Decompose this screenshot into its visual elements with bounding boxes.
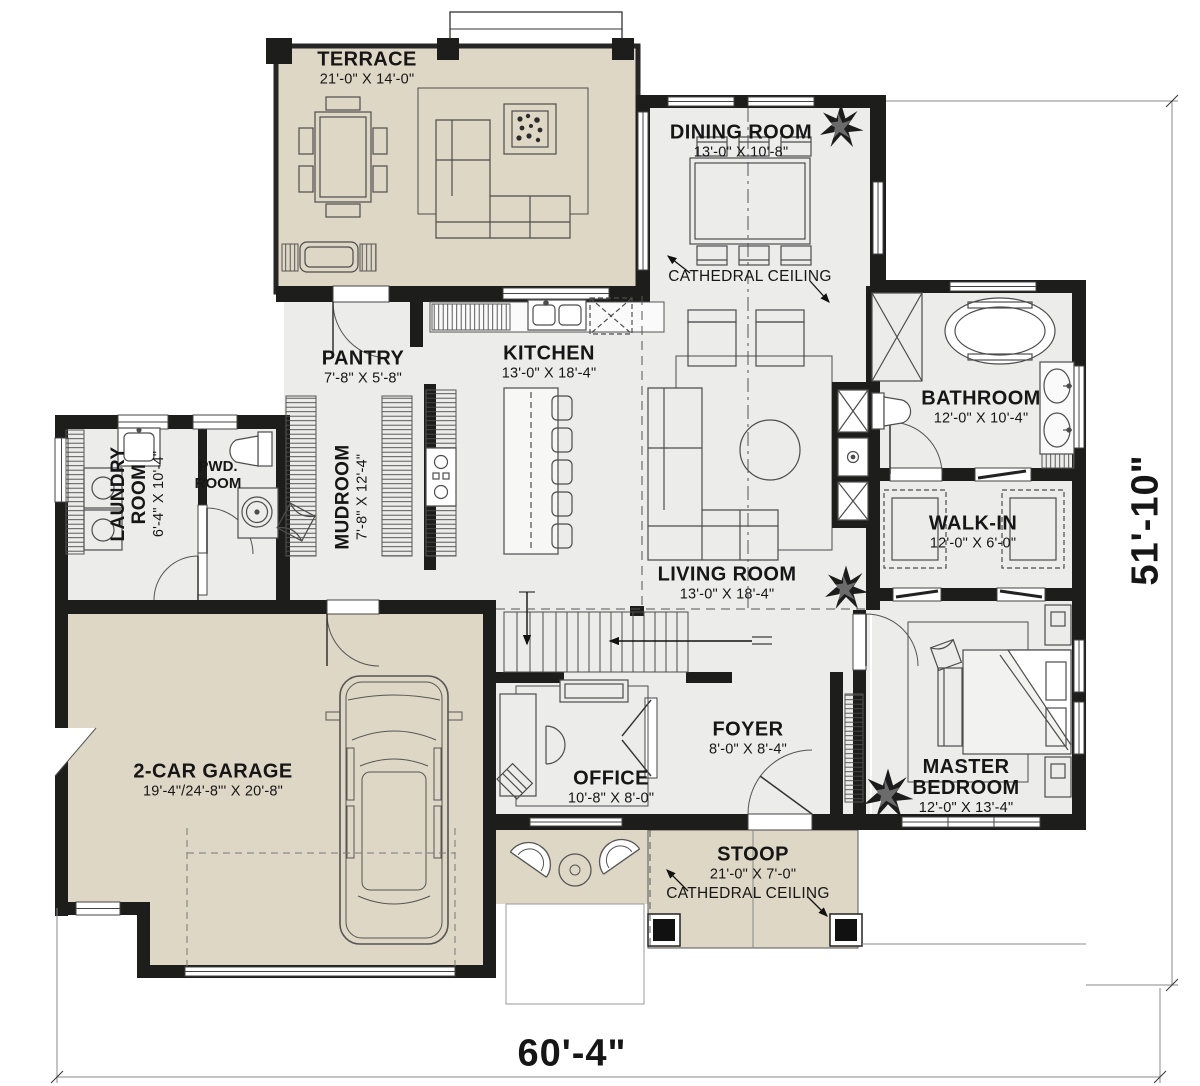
floor-porch (496, 824, 648, 904)
room-dims: 7'-8" X 5'-8" (322, 370, 404, 388)
room-name: TERRACE (317, 50, 416, 71)
range-icon (426, 448, 456, 506)
annotation-cathedral-ceiling-dining: CATHEDRAL CEILING (668, 268, 832, 286)
room-name: LAUNDRY ROOM (108, 428, 150, 560)
room-dims: 12'-0" X 13'-4" (896, 799, 1036, 817)
room-label-stoop: STOOP 21'-0" X 7'-0" (710, 845, 796, 884)
room-label-terrace: TERRACE 21'-0" X 14'-0" (317, 50, 416, 89)
room-label-powder-room: PWD. ROOM (185, 458, 251, 492)
floor-office-foyer (496, 614, 870, 824)
room-dims: 21'-0" X 7'-0" (710, 866, 796, 884)
room-name: LIVING ROOM (658, 565, 797, 586)
room-label-walk-in: WALK-IN 12'-0" X 6'-0" (929, 514, 1017, 553)
room-name: KITCHEN (502, 344, 597, 365)
room-label-laundry: LAUNDRY ROOM 6'-4" X 10'-4" (108, 428, 168, 560)
room-label-living: LIVING ROOM 13'-0" X 18'-4" (658, 565, 797, 604)
pergola-roof (450, 12, 622, 48)
room-dims: 13'-0" X 18'-4" (658, 586, 797, 604)
room-dims: 12'-0" X 6'-0" (929, 535, 1017, 553)
room-name: STOOP (710, 845, 796, 866)
room-dims: 7'-8" X 12'-4" (354, 444, 372, 549)
annotation-cathedral-ceiling-stoop: CATHEDRAL CEILING (666, 885, 830, 903)
room-name: DINING ROOM (670, 123, 812, 144)
room-label-master-bedroom: MASTER BEDROOM 12'-0" X 13'-4" (896, 757, 1036, 817)
room-label-pantry: PANTRY 7'-8" X 5'-8" (322, 349, 404, 388)
room-label-kitchen: KITCHEN 13'-0" X 18'-4" (502, 344, 597, 383)
room-name: MUDROOM (333, 444, 354, 549)
overall-width-dimension: 60'-4" (517, 1033, 626, 1076)
room-label-foyer: FOYER 8'-0" X 8'-4" (709, 720, 787, 759)
overall-height-dimension: 51'-10" (1125, 454, 1168, 585)
room-dims: 13'-0" X 18'-4" (502, 365, 597, 383)
room-name: OFFICE (568, 769, 654, 790)
floor-plan-drawing (0, 0, 1200, 1086)
front-steps (506, 904, 644, 1004)
room-label-garage: 2-CAR GARAGE 19'-4"/24'-8"' X 20'-8" (133, 762, 292, 801)
room-dims: 6'-4" X 10'-4" (150, 428, 168, 560)
room-dims: 8'-0" X 8'-4" (709, 741, 787, 759)
floor-plan-sheet: TERRACE 21'-0" X 14'-0" DINING ROOM 13'-… (0, 0, 1200, 1086)
room-name: BATHROOM (921, 389, 1040, 410)
room-label-office: OFFICE 10'-8" X 8'-0" (568, 769, 654, 808)
room-dims: 21'-0" X 14'-0" (317, 71, 416, 89)
room-dims: 19'-4"/24'-8"' X 20'-8" (133, 783, 292, 801)
room-label-mudroom: MUDROOM 7'-8" X 12'-4" (333, 444, 372, 549)
room-name: FOYER (709, 720, 787, 741)
room-label-bathroom: BATHROOM 12'-0" X 10'-4" (921, 389, 1040, 428)
room-dims: 12'-0" X 10'-4" (921, 410, 1040, 428)
room-label-dining: DINING ROOM 13'-0" X 10'-8" (670, 123, 812, 162)
room-dims: 10'-8" X 8'-0" (568, 790, 654, 808)
room-name: 2-CAR GARAGE (133, 762, 292, 783)
room-name: WALK-IN (929, 514, 1017, 535)
room-dims: 13'-0" X 10'-8" (670, 144, 812, 162)
room-name: PANTRY (322, 349, 404, 370)
room-name: MASTER BEDROOM (896, 757, 1036, 799)
